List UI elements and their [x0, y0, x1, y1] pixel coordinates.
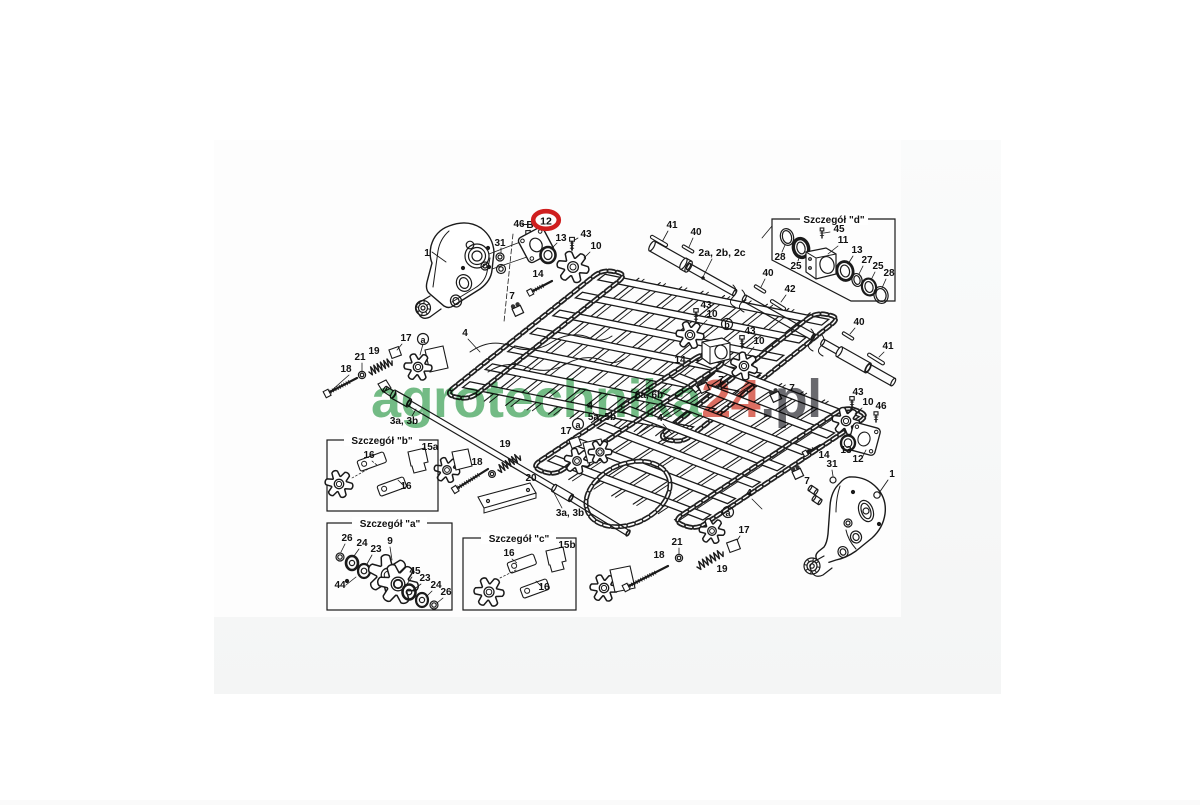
svg-text:21: 21: [354, 352, 366, 363]
svg-text:14: 14: [532, 269, 544, 280]
svg-text:26: 26: [341, 533, 353, 544]
svg-text:7: 7: [509, 291, 515, 302]
svg-text:40: 40: [762, 268, 774, 279]
svg-text:1: 1: [424, 248, 430, 259]
svg-text:7: 7: [804, 476, 810, 487]
svg-text:Szczegół "b": Szczegół "b": [351, 436, 412, 447]
svg-text:10: 10: [753, 336, 765, 347]
svg-text:9: 9: [387, 536, 393, 547]
svg-text:31: 31: [494, 238, 506, 249]
svg-text:28: 28: [883, 268, 895, 279]
svg-text:42: 42: [784, 284, 796, 295]
svg-text:18: 18: [653, 550, 665, 561]
svg-text:10: 10: [706, 309, 718, 320]
svg-text:11: 11: [838, 235, 849, 246]
svg-text:3a, 3b: 3a, 3b: [556, 508, 584, 519]
svg-text:b: b: [724, 320, 730, 330]
svg-text:40: 40: [690, 227, 702, 238]
svg-text:15b: 15b: [558, 540, 575, 551]
svg-text:18: 18: [471, 457, 483, 468]
svg-text:26: 26: [440, 587, 452, 598]
svg-text:40: 40: [853, 317, 865, 328]
svg-text:Szczegół "a": Szczegół "a": [360, 519, 421, 530]
svg-text:10: 10: [862, 397, 874, 408]
svg-text:16: 16: [400, 481, 412, 492]
svg-text:12: 12: [852, 454, 864, 465]
svg-text:25: 25: [872, 261, 884, 272]
svg-text:45: 45: [833, 224, 845, 235]
svg-text:16: 16: [363, 450, 375, 461]
svg-text:21: 21: [671, 537, 683, 548]
svg-text:13: 13: [555, 233, 567, 244]
svg-text:15a: 15a: [422, 442, 439, 453]
svg-text:18: 18: [340, 364, 352, 375]
svg-text:2a, 2b, 2c: 2a, 2b, 2c: [698, 247, 745, 259]
svg-text:agrotechnika24.pl: agrotechnika24.pl: [371, 369, 822, 429]
svg-text:24: 24: [356, 538, 368, 549]
svg-text:16: 16: [503, 548, 515, 559]
svg-text:17: 17: [400, 333, 412, 344]
svg-text:41: 41: [666, 220, 678, 231]
svg-text:16: 16: [538, 582, 550, 593]
svg-text:1: 1: [889, 469, 895, 480]
svg-text:14: 14: [818, 450, 830, 461]
svg-text:13: 13: [840, 445, 852, 456]
svg-text:19: 19: [368, 346, 380, 357]
svg-text:44: 44: [334, 580, 346, 591]
svg-text:19: 19: [716, 564, 728, 575]
svg-text:Szczegół "c": Szczegół "c": [489, 534, 550, 545]
svg-text:17: 17: [738, 525, 750, 536]
svg-text:41: 41: [882, 341, 894, 352]
svg-text:4: 4: [746, 488, 752, 499]
svg-text:10: 10: [590, 241, 602, 252]
svg-text:20: 20: [525, 473, 537, 484]
svg-text:25: 25: [790, 261, 802, 272]
svg-text:28: 28: [774, 252, 786, 263]
svg-text:27: 27: [861, 255, 873, 266]
svg-text:23: 23: [370, 544, 382, 555]
svg-text:46: 46: [875, 401, 887, 412]
svg-text:12: 12: [540, 216, 552, 228]
svg-text:4: 4: [462, 328, 468, 339]
svg-text:19: 19: [499, 439, 511, 450]
svg-text:23: 23: [419, 573, 431, 584]
svg-text:43: 43: [580, 229, 592, 240]
svg-text:14: 14: [674, 355, 686, 366]
